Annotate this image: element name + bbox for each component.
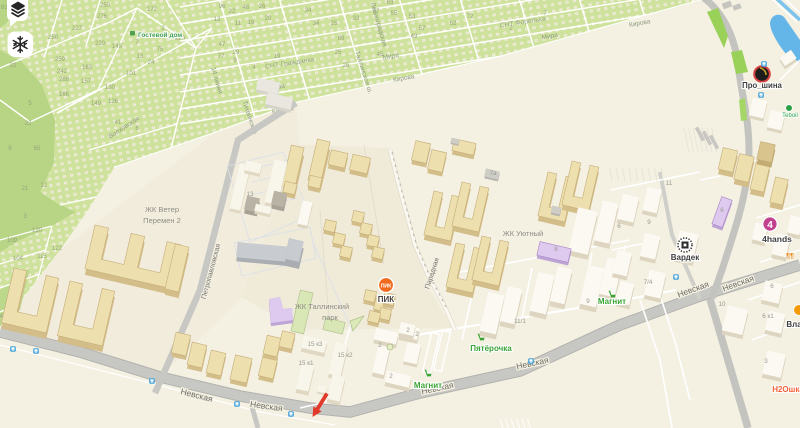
svg-text:2: 2: [378, 342, 382, 349]
svg-text:6: 6: [770, 283, 774, 290]
svg-text:242: 242: [57, 69, 68, 75]
svg-text:Вардек: Вардек: [671, 253, 700, 262]
svg-text:Вла: Вла: [786, 320, 800, 329]
svg-text:57: 57: [419, 26, 426, 32]
svg-text:15 к2: 15 к2: [337, 352, 353, 359]
svg-text:25: 25: [335, 50, 342, 56]
svg-text:250: 250: [100, 3, 111, 9]
svg-text:29: 29: [233, 50, 240, 56]
svg-text:47: 47: [219, 42, 226, 48]
svg-text:Н2Ошка: Н2Ошка: [772, 385, 800, 394]
svg-text:15 к1: 15 к1: [298, 360, 314, 367]
svg-text:49: 49: [411, 34, 418, 40]
svg-text:2: 2: [406, 327, 410, 334]
svg-text:145: 145: [112, 44, 123, 50]
svg-text:Магнит: Магнит: [598, 297, 626, 306]
svg-text:13: 13: [137, 54, 144, 60]
svg-text:65: 65: [34, 146, 41, 152]
svg-text:ЖК Уютный: ЖК Уютный: [503, 229, 543, 238]
svg-text:26: 26: [343, 63, 350, 69]
svg-text:101: 101: [126, 71, 137, 77]
svg-text:Про_шина: Про_шина: [742, 81, 782, 90]
svg-text:2: 2: [389, 373, 393, 380]
svg-text:Перемен 2: Перемен 2: [143, 216, 181, 225]
svg-text:33: 33: [353, 16, 360, 22]
svg-text:120: 120: [32, 228, 43, 234]
svg-text:77: 77: [218, 54, 225, 60]
svg-text:Гостевой дом: Гостевой дом: [138, 31, 182, 39]
svg-text:¶¶: ¶¶: [786, 253, 794, 260]
svg-text:24: 24: [148, 60, 155, 66]
svg-text:8: 8: [554, 246, 558, 253]
svg-text:6: 6: [720, 207, 724, 214]
svg-text:34: 34: [305, 8, 312, 14]
svg-text:ПИК: ПИК: [378, 295, 395, 304]
svg-text:166: 166: [59, 92, 70, 98]
svg-text:227: 227: [72, 26, 83, 32]
svg-text:19: 19: [274, 54, 281, 60]
svg-text:10: 10: [718, 301, 726, 308]
svg-text:Магнит: Магнит: [414, 381, 442, 390]
svg-text:25: 25: [331, 21, 338, 27]
svg-text:ЖК Таллинский: ЖК Таллинский: [295, 302, 349, 311]
svg-text:21: 21: [22, 186, 29, 192]
svg-text:259: 259: [55, 57, 66, 63]
svg-text:63: 63: [387, 0, 394, 6]
svg-text:13: 13: [246, 191, 254, 198]
svg-text:7/4: 7/4: [644, 279, 653, 286]
svg-text:149: 149: [91, 101, 102, 107]
svg-text:163: 163: [82, 65, 93, 71]
svg-text:22: 22: [229, 9, 236, 15]
svg-text:130: 130: [105, 85, 116, 91]
svg-text:96: 96: [219, 4, 226, 10]
svg-text:268: 268: [59, 77, 70, 83]
svg-text:4hands: 4hands: [762, 234, 792, 244]
svg-text:72: 72: [467, 14, 474, 20]
svg-text:Teboil: Teboil: [782, 113, 798, 119]
svg-text:104: 104: [13, 256, 24, 262]
svg-text:9: 9: [647, 219, 651, 226]
svg-text:ПИК: ПИК: [381, 284, 392, 290]
svg-text:16: 16: [248, 20, 255, 26]
svg-text:122: 122: [52, 246, 63, 252]
svg-text:11: 11: [235, 21, 242, 27]
svg-text:15 к3: 15 к3: [307, 341, 323, 348]
svg-text:26: 26: [259, 4, 266, 10]
svg-text:4: 4: [767, 220, 773, 231]
svg-text:250: 250: [48, 35, 59, 41]
svg-text:ЖК Ветер: ЖК Ветер: [145, 205, 179, 214]
svg-text:276: 276: [97, 14, 108, 20]
svg-text:109: 109: [7, 238, 18, 244]
svg-text:220: 220: [95, 41, 106, 47]
svg-text:парк: парк: [322, 313, 338, 322]
svg-text:126: 126: [108, 99, 119, 105]
svg-text:Пятёрочка: Пятёрочка: [470, 344, 512, 353]
svg-text:55: 55: [391, 11, 398, 17]
svg-text:3: 3: [764, 358, 768, 365]
svg-text:7а: 7а: [489, 170, 497, 177]
svg-text:6: 6: [617, 223, 621, 230]
svg-text:22: 22: [25, 121, 32, 127]
svg-text:172: 172: [147, 7, 158, 13]
svg-text:75: 75: [157, 47, 164, 53]
svg-text:46: 46: [243, 5, 250, 11]
svg-text:157: 157: [81, 79, 92, 85]
svg-text:34: 34: [313, 21, 320, 27]
svg-text:89: 89: [338, 36, 345, 42]
svg-text:11/1: 11/1: [514, 318, 526, 325]
svg-text:12: 12: [41, 183, 48, 189]
svg-text:22: 22: [10, 63, 17, 69]
svg-text:13: 13: [214, 17, 221, 23]
svg-text:2: 2: [415, 331, 419, 338]
svg-text:20: 20: [265, 16, 272, 22]
svg-text:9: 9: [586, 298, 590, 305]
svg-text:53: 53: [409, 14, 416, 20]
svg-text:62: 62: [450, 21, 457, 27]
svg-text:115: 115: [37, 254, 47, 260]
svg-text:6 к1: 6 к1: [762, 313, 774, 320]
svg-text:11: 11: [666, 180, 673, 187]
